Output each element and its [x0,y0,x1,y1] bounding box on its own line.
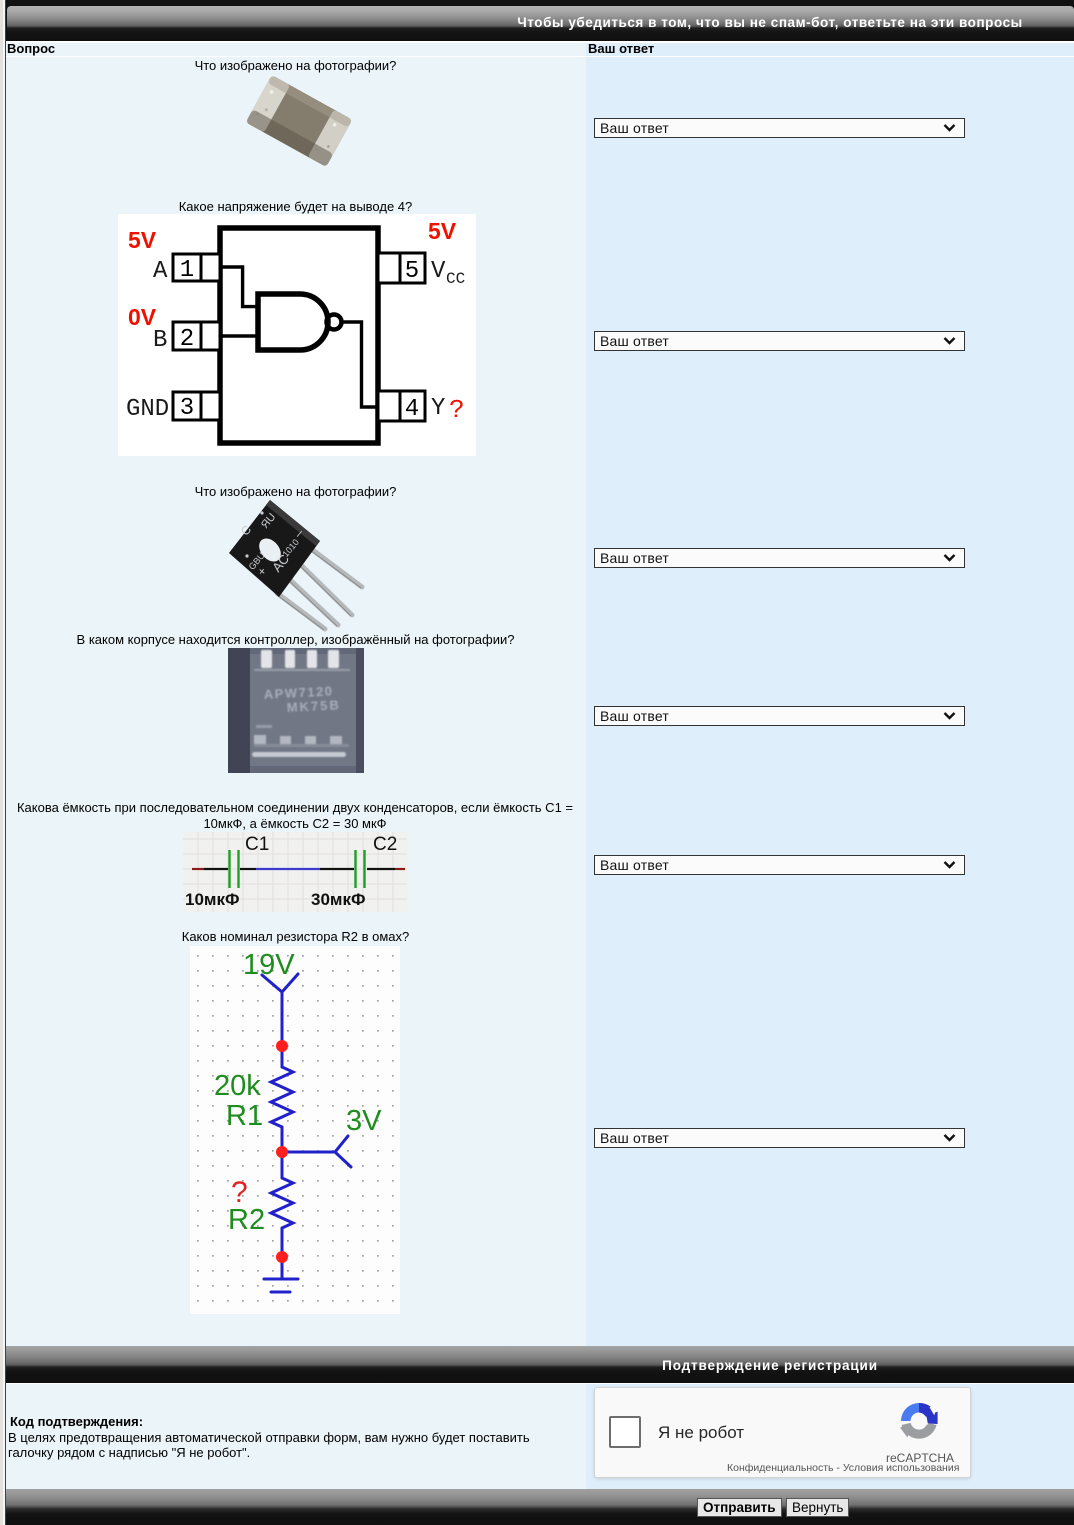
svg-text:10мкФ: 10мкФ [185,890,240,909]
svg-text:CC: CC [446,270,465,288]
svg-text:C2: C2 [373,834,397,855]
svg-text:?: ? [231,1176,248,1209]
svg-text:B: B [153,327,167,354]
svg-text:A: A [153,258,168,285]
svg-text:4: 4 [405,396,419,423]
svg-text:30мкФ: 30мкФ [311,890,366,909]
svg-text:0V: 0V [128,304,157,330]
svg-text:5V: 5V [128,227,157,253]
svg-text:C1: C1 [245,834,269,855]
svg-text:5V: 5V [428,218,457,244]
svg-text:19V: 19V [243,949,295,981]
svg-text:Y: Y [431,395,445,422]
svg-text:1: 1 [180,257,194,284]
svg-text:MK75B: MK75B [286,697,341,715]
svg-text:20k: 20k [214,1070,261,1102]
svg-text:2: 2 [180,326,194,353]
svg-text:5: 5 [405,258,419,285]
svg-text:3V: 3V [346,1105,382,1137]
svg-text:?: ? [449,395,465,425]
svg-text:3: 3 [180,395,194,422]
svg-text:R1: R1 [226,1100,263,1132]
svg-text:GND: GND [126,396,169,423]
svg-text:V: V [431,258,446,285]
